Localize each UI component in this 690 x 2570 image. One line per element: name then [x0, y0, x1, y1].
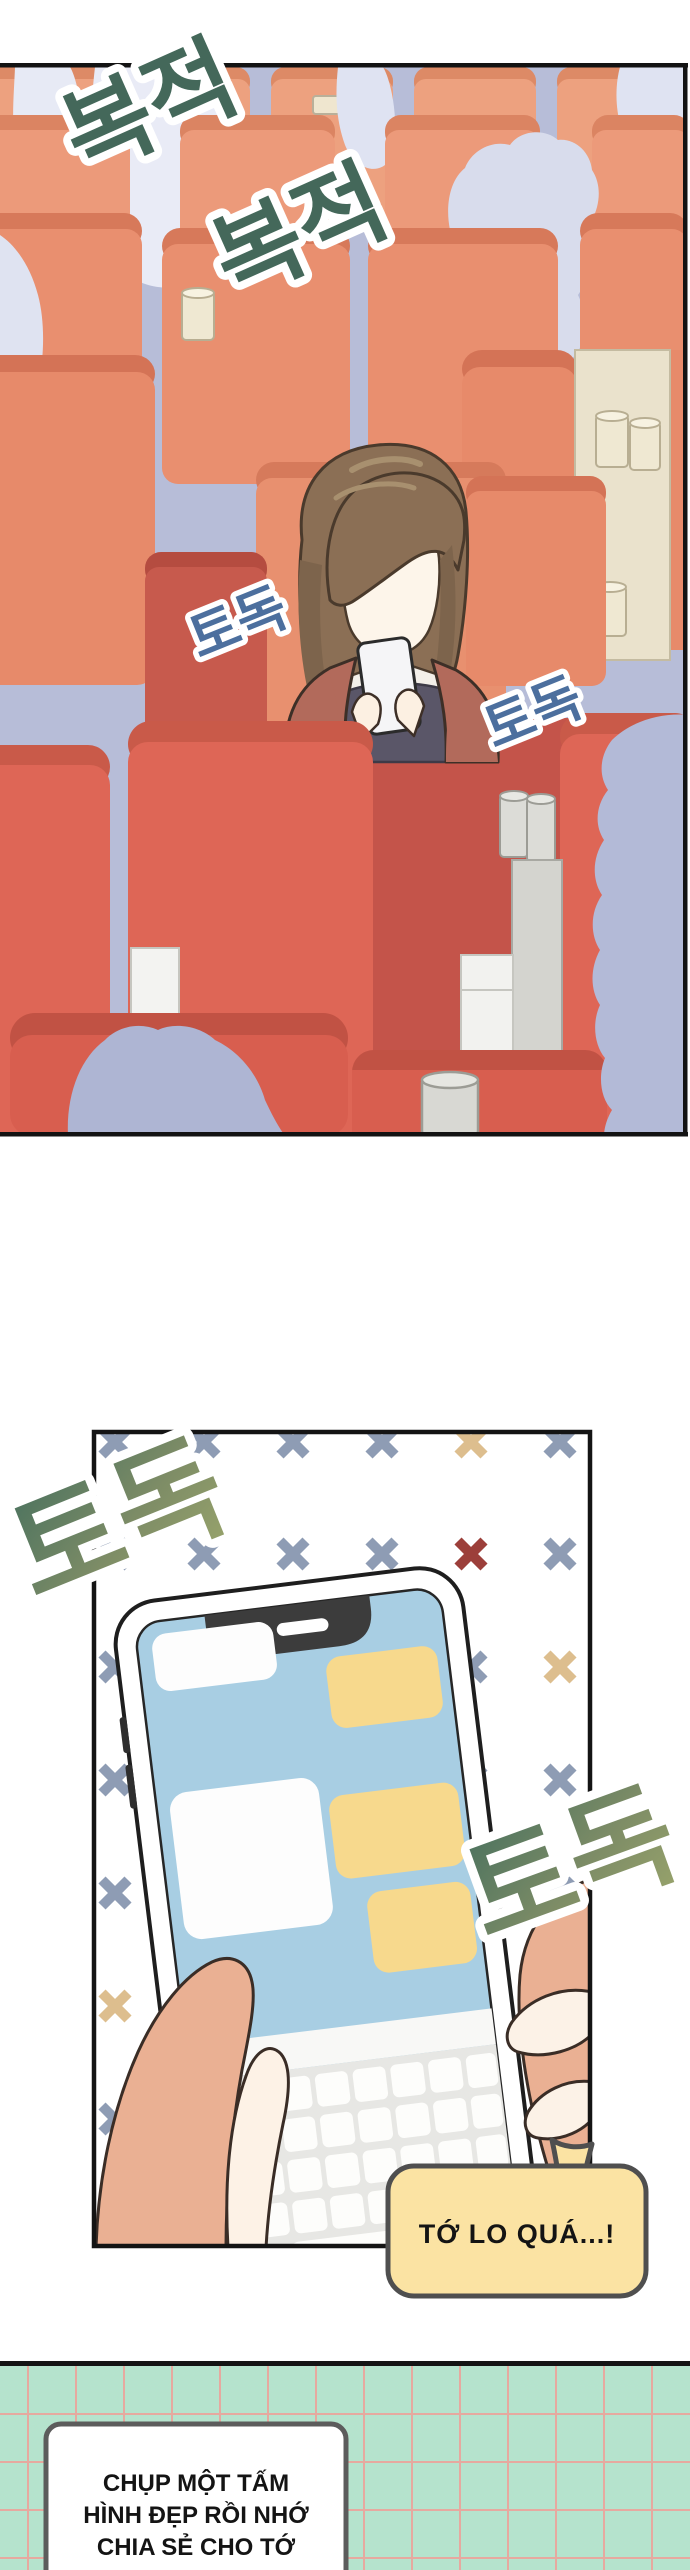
front-cup [422, 1072, 478, 1136]
caption-line-2: HÌNH ĐẸP RỒI NHỚ [83, 2501, 309, 2529]
bottom-section: CHỤP MỘT TẤM HÌNH ĐẸP RỒI NHỚ CHIA SẺ CH… [0, 2361, 690, 2570]
message-bubble-yellow [327, 1781, 466, 1880]
cup-on-seat-left [182, 288, 214, 340]
caption-line-1: CHỤP MỘT TẤM [103, 2469, 289, 2497]
message-bubble-white [168, 1776, 335, 1941]
webtoon-artwork: 복적 복적 토독 토독 토독 토독 TỚ LO QUÁ...! CHỤP MỘT… [0, 0, 690, 2570]
message-bubble-yellow [325, 1644, 445, 1729]
section-divider [0, 2361, 690, 2366]
webtoon-page: 복적 복적 토독 토독 토독 토독 TỚ LO QUÁ...! CHỤP MỘT… [0, 0, 690, 2570]
caption-line-3: CHIA SẺ CHO TỚ [97, 2532, 296, 2561]
speech-bubble-join [558, 2170, 586, 2182]
message-bubble-yellow [365, 1880, 478, 1974]
crowd-silhouette-front-right [593, 714, 690, 1136]
speech-bubble-text: TỚ LO QUÁ...! [419, 2218, 616, 2249]
caption-text: CHỤP MỘT TẤM HÌNH ĐẸP RỒI NHỚ CHIA SẺ CH… [83, 2469, 309, 2561]
